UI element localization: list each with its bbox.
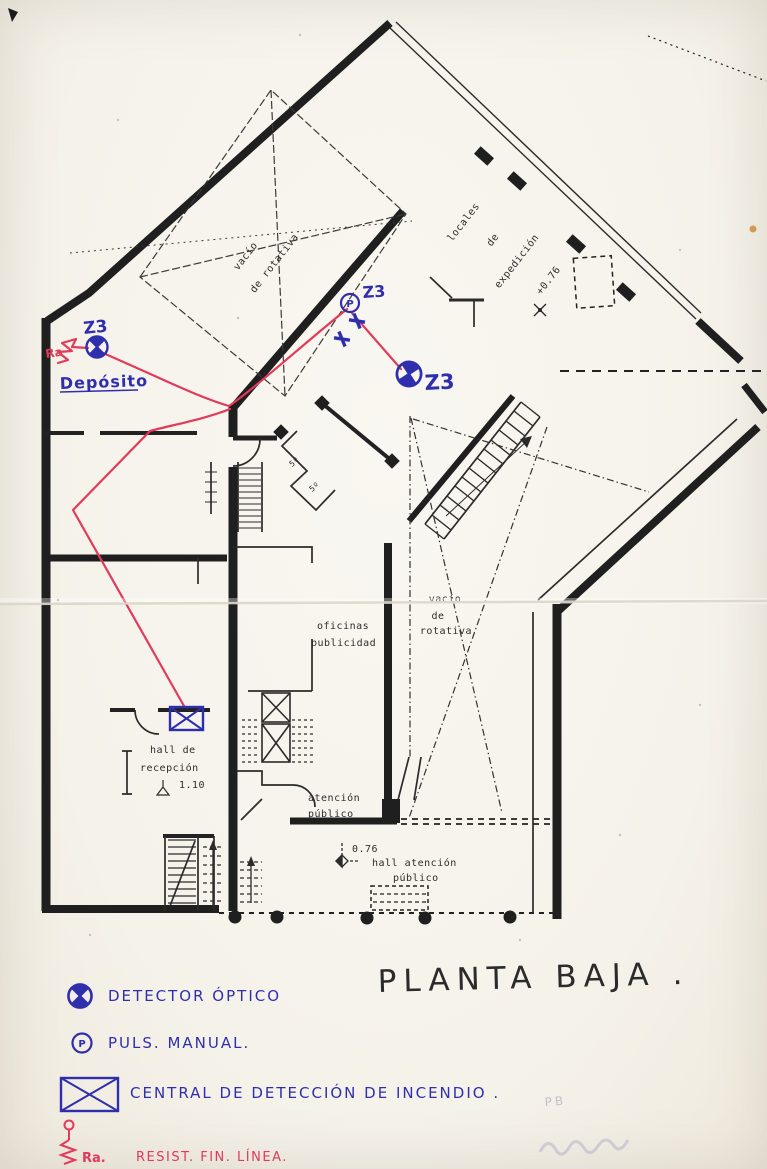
zone-label-left: Z3: [82, 317, 108, 339]
corner-speck: [8, 8, 18, 22]
pencil-note: PB: [544, 1094, 567, 1110]
wall-corner-blob: [382, 799, 400, 823]
stain: [750, 226, 757, 233]
zone-label-mid: Z3: [424, 369, 455, 395]
rotary-void-top-outline: [70, 90, 412, 396]
callpoint-letter-plan: P: [346, 299, 353, 310]
room-label-rotary-mid-2: de: [431, 611, 444, 622]
floor-plan-svg: vacío de rotativa locales de expedición …: [0, 0, 767, 1169]
room-label-reception-level: 1.10: [179, 780, 205, 791]
room-label-rotary-top-2: de rotativa: [248, 232, 301, 295]
page-title: PLANTA BAJA .: [377, 956, 689, 1000]
legend: P DETECTOR ÓPTICO PULS. MANUAL. CENTRAL …: [61, 984, 500, 1166]
room-label-hall-attention-1: hall atención: [372, 857, 457, 869]
room-label-offices-2: publicidad: [311, 638, 376, 649]
room-label-rotary-mid-3: rotativa: [420, 626, 472, 637]
level-mark-reception: [157, 780, 169, 795]
room-label-5a: 5º: [287, 455, 301, 469]
stair-core: [242, 693, 316, 762]
room-label-5b: 5º: [307, 480, 321, 494]
room-label-reception-2: recepción: [140, 762, 199, 774]
room-label-reception-1: hall de: [150, 745, 196, 756]
pier-line: [390, 22, 701, 319]
legend-panel-label: CENTRAL DE DETECCIÓN DE INCENDIO .: [130, 1083, 500, 1102]
legend-detector-icon: [68, 984, 91, 1007]
diagonal-stair: [425, 402, 540, 539]
room-label-rotary-top-1: vacío: [231, 240, 261, 273]
room-label-offices-1: oficinas: [317, 621, 369, 632]
optical-detector-symbol-mid: [395, 360, 424, 389]
legend-eol-tag: Ra.: [82, 1151, 106, 1166]
room-label-expedition-2: de: [485, 232, 502, 249]
resistor-tag-label: Ra: [44, 345, 63, 361]
room-label-expedition-1: locales: [446, 201, 483, 244]
optical-detector-symbol-left: [87, 337, 108, 358]
level-label-top: +0.76: [535, 265, 564, 297]
scanned-floor-plan-page: vacío de rotativa locales de expedición …: [0, 0, 767, 1169]
pencil-scribble: [540, 1140, 628, 1154]
legend-callpoint-label: PULS. MANUAL.: [108, 1034, 250, 1052]
room-label-hall-attention-2: público: [393, 872, 439, 884]
zone-label-callpoint: Z3: [362, 281, 386, 302]
level-mark-top: [534, 304, 546, 316]
legend-eol-icon: [61, 1121, 75, 1165]
siren-tick-2: [334, 332, 350, 347]
legend-detector-label: DETECTOR ÓPTICO: [108, 986, 281, 1005]
room-label-attention-2: público: [308, 808, 354, 820]
walls-medium: [44, 404, 392, 836]
dashed-lines: [219, 36, 766, 913]
legend-callpoint-letter: P: [78, 1039, 85, 1050]
room-label-attention-1: atención: [308, 792, 360, 804]
level-label-hall: 0.76: [352, 844, 378, 855]
legend-eol-label: RESIST. FIN. LÍNEA.: [136, 1149, 288, 1165]
walls-thick: [42, 23, 765, 919]
blue-annotations: [87, 294, 424, 730]
legend-panel-icon: [61, 1078, 118, 1111]
